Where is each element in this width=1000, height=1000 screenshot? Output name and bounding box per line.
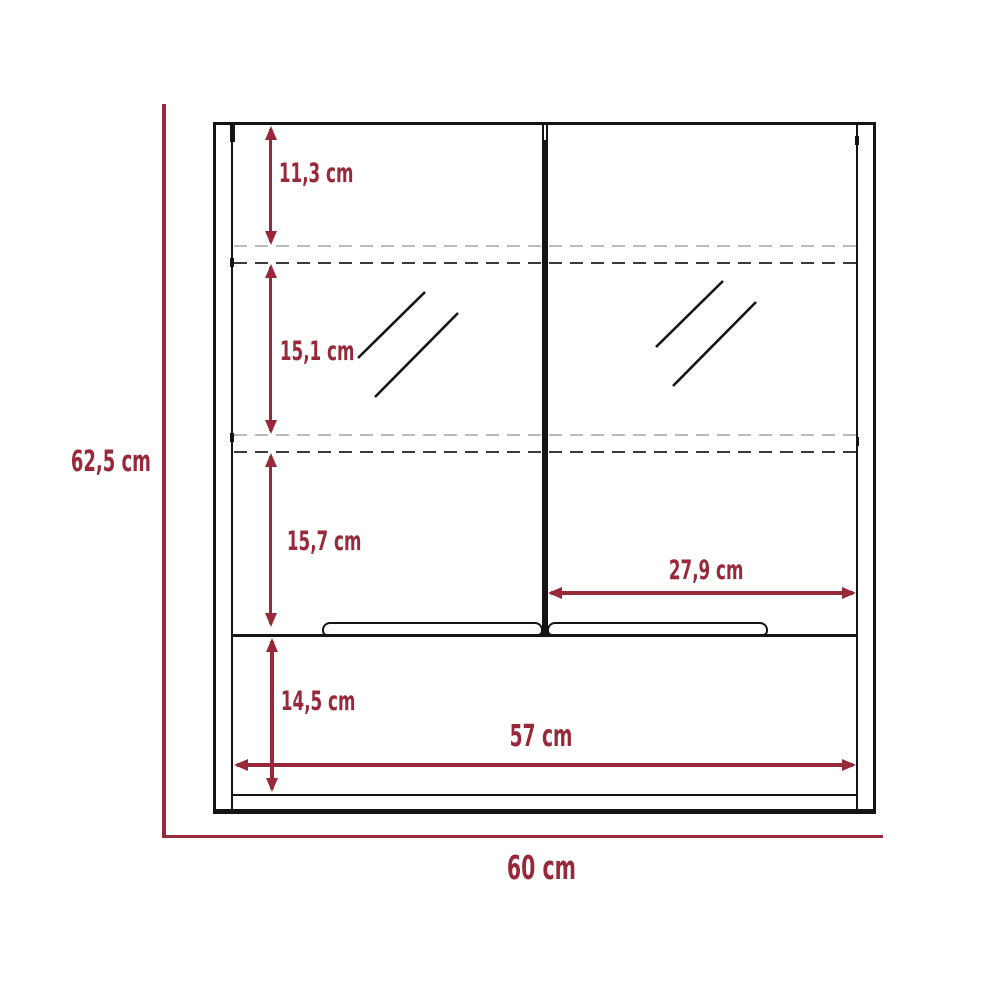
mirror-mark-right-door: [652, 277, 758, 389]
upper-shelf-dashed-bottom: [234, 262, 856, 264]
overall-height-dimension-line: [162, 104, 165, 838]
left-door-handle: [322, 622, 543, 637]
cabinet-right-panel-inner: [856, 122, 858, 812]
right-door-handle: [547, 622, 768, 637]
dim-label-inner-width: 57 cm: [507, 721, 575, 753]
dim-label-top-section: 11,3 cm: [279, 160, 347, 188]
dim-arrow-door-width: [548, 587, 856, 599]
arrowhead-right-icon: [842, 587, 856, 599]
dim-arrow-mirror-section: [265, 264, 277, 435]
arrowhead-down-icon: [265, 613, 277, 627]
upper-shelf-dashed-top: [234, 245, 856, 247]
arrow-shaft: [551, 591, 853, 594]
left-door-hinge-mark: [230, 123, 235, 142]
dim-label-overall-height: 62,5 cm: [71, 446, 139, 476]
arrowhead-down-icon: [266, 778, 278, 792]
dim-arrow-top-section: [265, 126, 277, 246]
overall-width-dimension-line: [162, 835, 883, 838]
arrow-shaft: [269, 129, 272, 243]
base-shelf-line: [233, 794, 856, 796]
arrowhead-right-icon: [842, 759, 856, 771]
cabinet-left-panel-inner: [231, 122, 233, 812]
arrowhead-down-icon: [265, 231, 277, 245]
dim-label-lower-section: 15,7 cm: [287, 528, 355, 556]
center-door-divider: [542, 122, 547, 636]
dimension-drawing-canvas: 11,3 cm 15,1 cm 15,7 cm 14,5 cm 27,9 cm …: [0, 0, 1000, 1000]
arrowhead-down-icon: [265, 420, 277, 434]
arrow-shaft: [269, 267, 272, 432]
arrow-shaft: [269, 456, 272, 624]
right-door-hinge-mark: [855, 136, 859, 145]
dim-label-mirror-section: 15,1 cm: [280, 338, 348, 366]
mirror-mark-left-door: [354, 288, 460, 400]
dim-label-base-section: 14,5 cm: [281, 688, 349, 716]
dim-arrow-lower-section: [265, 453, 277, 627]
dim-label-door-width: 27,9 cm: [669, 557, 737, 585]
arrow-shaft: [237, 763, 854, 766]
lower-shelf-dashed-top: [234, 434, 856, 436]
dim-arrow-inner-width: [234, 759, 857, 771]
cabinet-left-panel-outer: [213, 122, 216, 814]
shelf-pin-right-lower: [856, 437, 859, 446]
cabinet-right-panel-outer: [873, 122, 876, 814]
lower-shelf-dashed-bottom: [234, 451, 856, 453]
dim-label-overall-width: 60 cm: [507, 851, 575, 886]
cabinet-bottom-edge: [213, 809, 876, 814]
divider-top-notch: [544, 125, 546, 140]
